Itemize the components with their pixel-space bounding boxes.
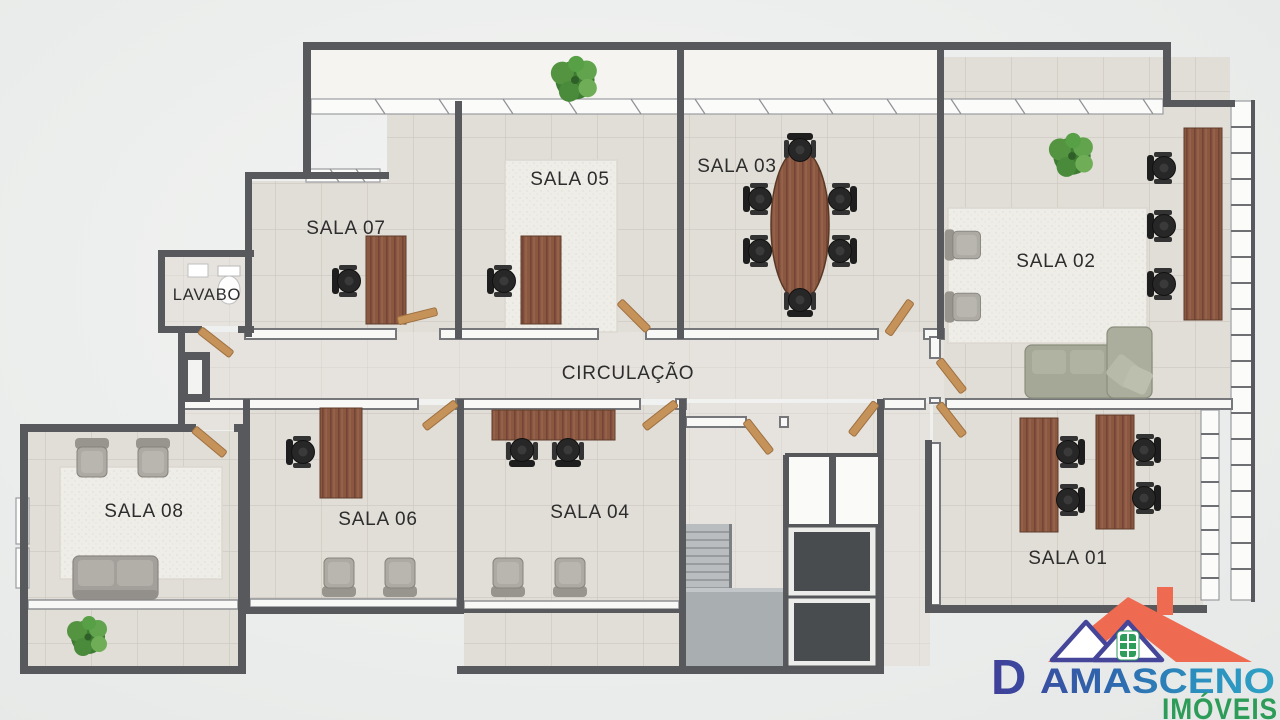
guest-chair [553,558,587,597]
room-label-sala02: SALA 02 [1016,251,1096,272]
wall-sala07-sala05 [455,101,462,339]
chimney [1157,587,1173,615]
guest-chair [383,558,417,597]
wall-sala05-sala03 [677,42,684,339]
desk [521,236,561,324]
sink [188,264,208,277]
room-label-sala06: SALA 06 [338,509,418,530]
desk [320,408,362,498]
right-facade-windows [1231,100,1255,602]
brand-initial: D [991,651,1026,705]
guest-chair [322,558,356,597]
desk [1184,128,1222,320]
room-label-sala07: SALA 07 [306,218,386,239]
wall-sala03-sala02 [937,42,944,339]
desk [1096,415,1134,529]
armchair [75,438,109,477]
room-label-sala03: SALA 03 [697,156,777,177]
rug [948,208,1147,343]
floor-corridor-strip [884,403,930,666]
top-eave-strip [311,50,941,102]
room-label-lavabo: LAVABO [173,286,241,304]
sofa [73,556,158,599]
house-window-icon [1117,631,1139,660]
wall-top-facade [303,42,1171,50]
conference-table [771,149,829,301]
elevators [787,455,880,667]
floor-plan-stage: SALA 07 SALA 05 SALA 03 SALA 02 LAVABO C… [0,0,1280,720]
floor-plan: SALA 07 SALA 05 SALA 03 SALA 02 LAVABO C… [0,0,1280,720]
desk [366,236,406,324]
guest-chair [491,558,525,597]
armchair [945,291,981,322]
desk [492,410,615,440]
room-label-circulacao: CIRCULAÇÃO [562,362,695,384]
armchair [945,229,981,260]
room-label-sala05: SALA 05 [530,169,610,190]
room-label-sala04: SALA 04 [550,502,630,523]
sala01-facade-windows [1201,410,1219,600]
room-label-sala01: SALA 01 [1028,548,1108,569]
desk [1020,418,1058,532]
stair-landing [686,588,783,666]
facade-window-band [311,99,1163,114]
armchair [136,438,170,477]
room-label-sala08: SALA 08 [104,501,184,522]
brand-tagline: IMÓVEIS [1162,692,1278,720]
